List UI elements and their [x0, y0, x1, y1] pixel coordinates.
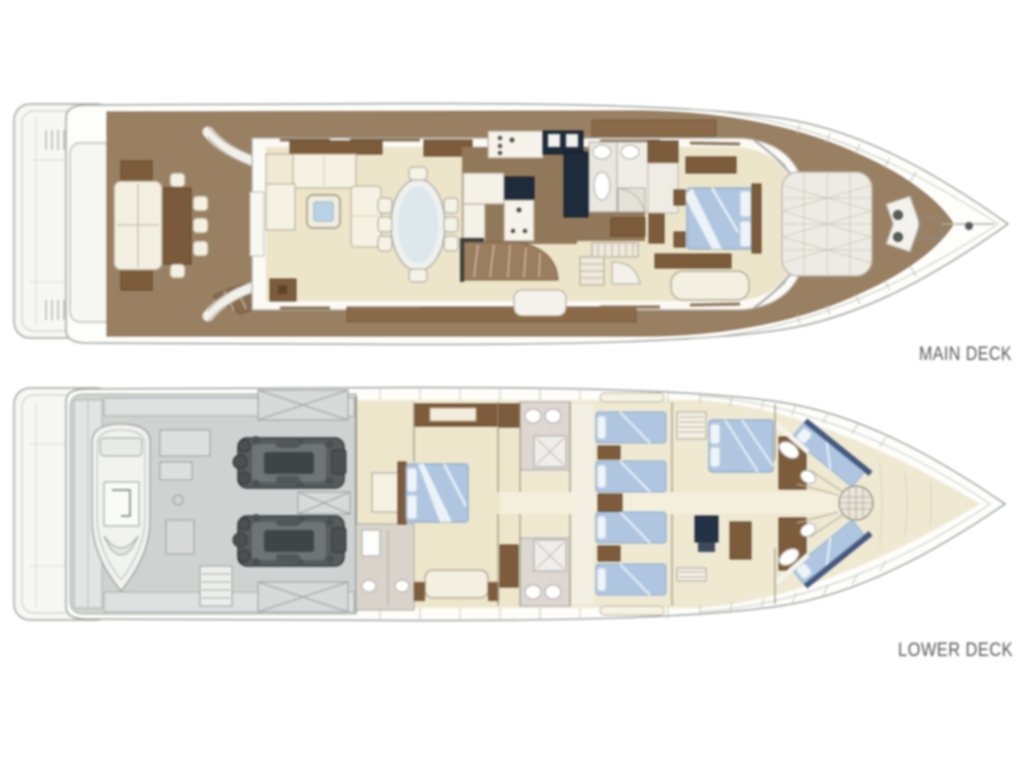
svg-text:LOWER DECK: LOWER DECK — [898, 640, 1013, 661]
svg-text:MAIN DECK: MAIN DECK — [919, 344, 1012, 365]
